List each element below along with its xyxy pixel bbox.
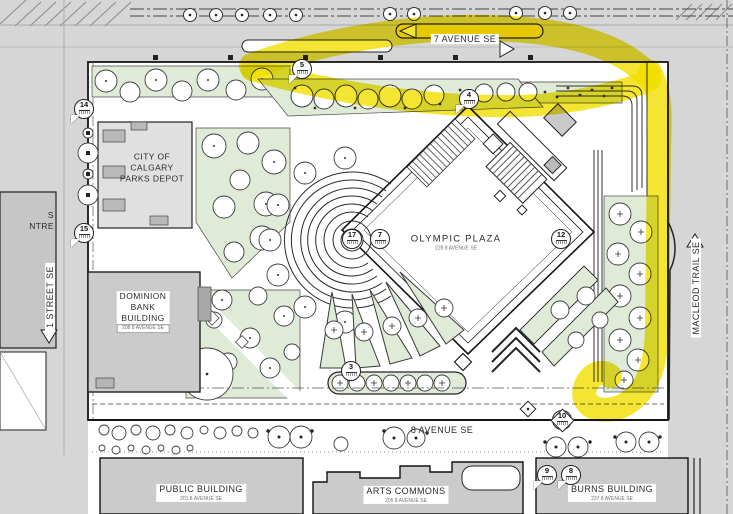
callout-7: 7 bbox=[370, 229, 390, 249]
callout-8: 8 bbox=[561, 465, 581, 485]
highlighter-annotation bbox=[0, 0, 733, 514]
arts-commons-label: ARTS COMMONS 205 8 AVENUE SE bbox=[363, 486, 448, 504]
callout-9: 9 bbox=[537, 465, 557, 485]
callout-14: 14 bbox=[74, 99, 94, 119]
plaza-address: 228 8 AVENUE SE bbox=[411, 246, 501, 253]
public-building-label: PUBLIC BUILDING 201 8 AVENUE SE bbox=[156, 484, 246, 502]
street-label-7-avenue: 7 AVENUE SE bbox=[431, 34, 499, 44]
west-building-partial-label: S NTRE bbox=[0, 210, 54, 232]
callout-12: 12 bbox=[551, 229, 571, 249]
plaza-name: OLYMPIC PLAZA bbox=[411, 234, 501, 246]
street-label-1-street: 1 STREET SE bbox=[45, 263, 55, 331]
callout-10: 10 bbox=[552, 410, 572, 430]
callout-15: 15 bbox=[74, 223, 94, 243]
dominion-bank-label: DOMINION BANK BUILDING 208 8 AVENUE SE bbox=[117, 291, 170, 333]
callout-5: 5 bbox=[292, 59, 312, 79]
street-label-8-avenue: 8 AVENUE SE bbox=[411, 425, 473, 435]
plaza-label: OLYMPIC PLAZA 228 8 AVENUE SE bbox=[411, 234, 501, 253]
street-label-macleod-trail: MACLEOD TRAIL SE bbox=[691, 239, 701, 338]
parks-depot-label: CITY OF CALGARY PARKS DEPOT bbox=[120, 151, 184, 184]
callout-17: 17 bbox=[342, 229, 362, 249]
callout-4: 4 bbox=[459, 89, 479, 109]
burns-building-label: BURNS BUILDING 237 8 AVENUE SE bbox=[568, 484, 656, 502]
callout-3: 3 bbox=[341, 361, 361, 381]
site-plan-map: 7 AVENUE SE 8 AVENUE SE 1 STREET SE MACL… bbox=[0, 0, 733, 514]
